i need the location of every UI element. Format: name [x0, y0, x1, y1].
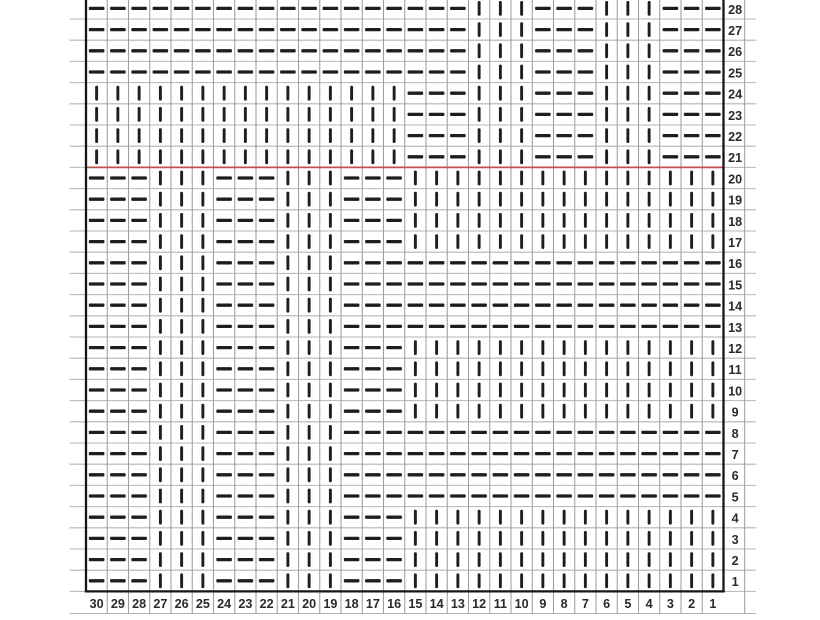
- svg-text:25: 25: [728, 66, 742, 80]
- svg-text:20: 20: [728, 172, 742, 186]
- svg-text:9: 9: [732, 406, 739, 420]
- svg-text:10: 10: [515, 597, 529, 611]
- svg-text:12: 12: [472, 597, 486, 611]
- svg-text:3: 3: [732, 533, 739, 547]
- svg-text:21: 21: [728, 151, 742, 165]
- svg-text:10: 10: [728, 384, 742, 398]
- svg-text:27: 27: [728, 24, 742, 38]
- svg-text:1: 1: [709, 597, 716, 611]
- svg-text:14: 14: [430, 597, 444, 611]
- svg-text:19: 19: [323, 597, 337, 611]
- svg-text:24: 24: [217, 597, 231, 611]
- svg-text:5: 5: [732, 490, 739, 504]
- svg-text:3: 3: [667, 597, 674, 611]
- svg-text:9: 9: [539, 597, 546, 611]
- svg-text:30: 30: [90, 597, 104, 611]
- svg-text:15: 15: [728, 278, 742, 292]
- svg-text:14: 14: [728, 300, 742, 314]
- svg-text:17: 17: [366, 597, 380, 611]
- svg-text:16: 16: [728, 257, 742, 271]
- svg-text:4: 4: [646, 597, 653, 611]
- svg-text:7: 7: [732, 448, 739, 462]
- svg-text:26: 26: [175, 597, 189, 611]
- svg-text:20: 20: [302, 597, 316, 611]
- svg-text:15: 15: [408, 597, 422, 611]
- svg-text:22: 22: [260, 597, 274, 611]
- svg-text:11: 11: [494, 597, 507, 611]
- svg-text:29: 29: [111, 597, 125, 611]
- svg-text:11: 11: [728, 363, 741, 377]
- svg-text:6: 6: [732, 469, 739, 483]
- svg-text:13: 13: [728, 321, 742, 335]
- svg-text:25: 25: [196, 597, 210, 611]
- svg-text:23: 23: [238, 597, 252, 611]
- svg-text:8: 8: [561, 597, 568, 611]
- svg-text:4: 4: [732, 512, 739, 526]
- svg-text:28: 28: [728, 3, 742, 17]
- svg-text:18: 18: [728, 215, 742, 229]
- svg-text:18: 18: [345, 597, 359, 611]
- svg-text:5: 5: [624, 597, 631, 611]
- svg-text:19: 19: [728, 194, 742, 208]
- svg-text:12: 12: [728, 342, 742, 356]
- svg-text:27: 27: [153, 597, 167, 611]
- svg-text:22: 22: [728, 130, 742, 144]
- svg-text:26: 26: [728, 45, 742, 59]
- svg-text:24: 24: [728, 88, 742, 102]
- svg-text:6: 6: [603, 597, 610, 611]
- svg-text:7: 7: [582, 597, 589, 611]
- svg-text:1: 1: [732, 575, 739, 589]
- svg-text:21: 21: [281, 597, 295, 611]
- svg-text:17: 17: [728, 236, 742, 250]
- svg-text:2: 2: [688, 597, 695, 611]
- svg-text:13: 13: [451, 597, 465, 611]
- svg-text:2: 2: [732, 554, 739, 568]
- svg-text:16: 16: [387, 597, 401, 611]
- svg-text:28: 28: [132, 597, 146, 611]
- svg-text:8: 8: [732, 427, 739, 441]
- svg-text:23: 23: [728, 109, 742, 123]
